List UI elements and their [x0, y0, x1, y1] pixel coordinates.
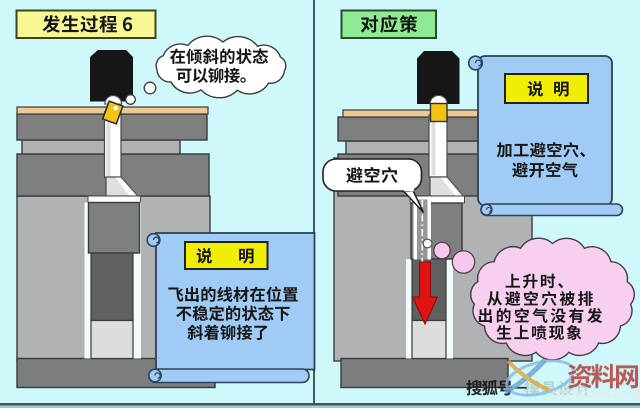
svg-text:[ZLW.KS1616.COM]: [ZLW.KS1616.COM]	[552, 389, 640, 400]
